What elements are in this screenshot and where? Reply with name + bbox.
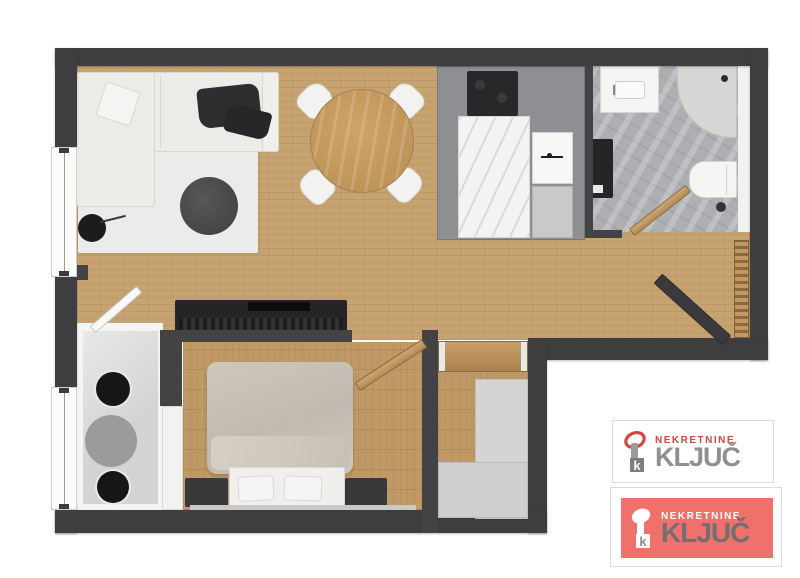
bed-duvet xyxy=(207,362,353,474)
wall-pillar xyxy=(77,265,88,280)
floor-plan: k NEKRETNINE KLJUČ k NEKRETNINE KLJUČ xyxy=(0,0,800,578)
kitchen-counter xyxy=(458,116,530,238)
window-mullion xyxy=(64,152,65,272)
burner xyxy=(497,93,507,103)
key-letter: k xyxy=(633,458,641,473)
duvet-fold xyxy=(211,436,349,470)
toilet xyxy=(689,161,737,198)
wc-fixture-bottom xyxy=(97,471,129,503)
sink-basin xyxy=(615,81,645,99)
wall-wc-bedroom xyxy=(160,330,182,406)
nightstand-left xyxy=(185,478,228,507)
bathroom-right-ledge xyxy=(738,66,750,232)
cooktop xyxy=(467,71,518,116)
bathroom-vanity xyxy=(600,66,659,113)
window-bedroom xyxy=(51,387,77,510)
window-mullion xyxy=(64,392,65,505)
hall-closet-horizontal xyxy=(438,462,528,518)
window-cap xyxy=(59,271,69,276)
window-cap xyxy=(59,148,69,153)
wall-top xyxy=(55,48,768,66)
wc-fixture-top xyxy=(96,372,130,406)
wall-bedroom-hall xyxy=(422,330,438,533)
wc-fixture-middle xyxy=(85,415,137,467)
key-logo-icon: k xyxy=(629,506,656,550)
console-end-left xyxy=(439,342,445,371)
window-living xyxy=(51,147,77,277)
nightstand-right xyxy=(345,478,387,507)
bed-pillow-right xyxy=(284,475,323,501)
faucet xyxy=(613,85,615,95)
wall-bathroom-south xyxy=(585,230,622,238)
logo-card-red: k NEKRETNINE KLJUČ xyxy=(610,487,782,567)
bed-footer-strip xyxy=(190,505,416,510)
washer-label xyxy=(592,185,603,193)
round-rug xyxy=(180,177,238,235)
toilet-brush xyxy=(716,202,726,212)
oven-knob xyxy=(547,153,552,158)
oven-handle xyxy=(541,156,563,158)
tv-sideboard-slats xyxy=(179,318,343,330)
bedroom-wardrobe-white xyxy=(162,406,183,510)
wall-kitchen-bath xyxy=(585,66,593,238)
logo-red-panel: k NEKRETNINE KLJUČ xyxy=(621,498,773,558)
kitchen-cabinet xyxy=(532,186,573,238)
wall-notch xyxy=(528,338,547,533)
window-cap xyxy=(59,388,69,393)
oven xyxy=(532,132,573,184)
wall-right xyxy=(750,48,768,360)
dining-table xyxy=(310,89,414,193)
key-letter: k xyxy=(639,534,647,549)
tv-sideboard xyxy=(175,300,347,332)
window-cap xyxy=(59,504,69,509)
wall-bottom-right xyxy=(540,338,768,360)
logo-brand-main: KLJUČ xyxy=(655,446,740,468)
wall-left-middle xyxy=(55,277,77,387)
console-end-right xyxy=(521,342,527,371)
shower-drain xyxy=(721,75,728,82)
tv xyxy=(248,302,310,311)
logo-card-light: k NEKRETNINE KLJUČ xyxy=(612,420,774,483)
radiator xyxy=(734,240,749,338)
sofa-seat-seam xyxy=(160,76,161,148)
logo-text-block: NEKRETNINE KLJUČ xyxy=(661,511,749,545)
logo-brand-main: KLJUČ xyxy=(661,522,749,545)
logo-text-block: NEKRETNINE KLJUČ xyxy=(655,435,740,468)
bed-pillow-left xyxy=(237,475,274,502)
key-logo-icon: k xyxy=(623,430,650,474)
burner xyxy=(475,80,485,90)
wall-living-bedroom xyxy=(160,330,352,342)
cistern-line xyxy=(726,165,727,195)
side-table xyxy=(78,214,106,242)
hall-console xyxy=(438,341,528,372)
wall-left-upper xyxy=(55,48,77,148)
